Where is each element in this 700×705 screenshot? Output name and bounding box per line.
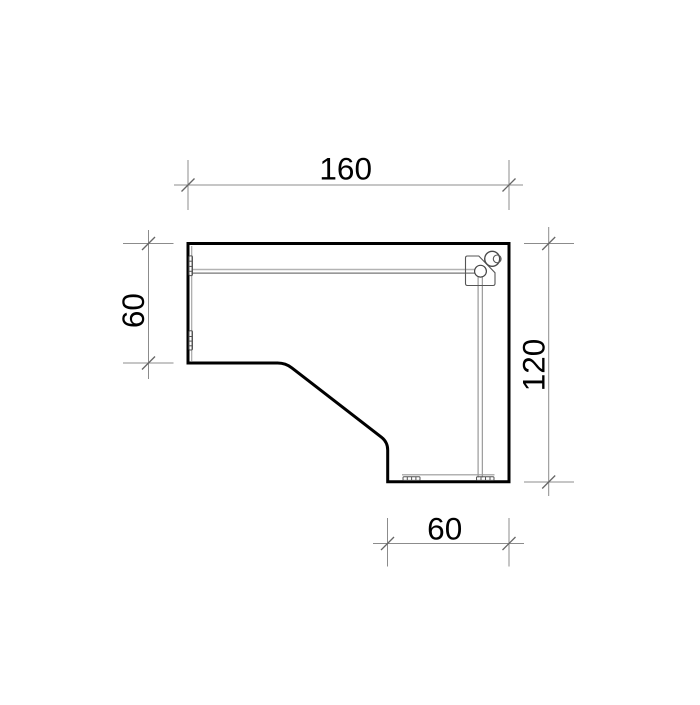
svg-text:120: 120 bbox=[516, 339, 552, 392]
svg-text:60: 60 bbox=[115, 293, 151, 328]
svg-text:60: 60 bbox=[427, 510, 462, 546]
svg-text:160: 160 bbox=[319, 150, 372, 186]
